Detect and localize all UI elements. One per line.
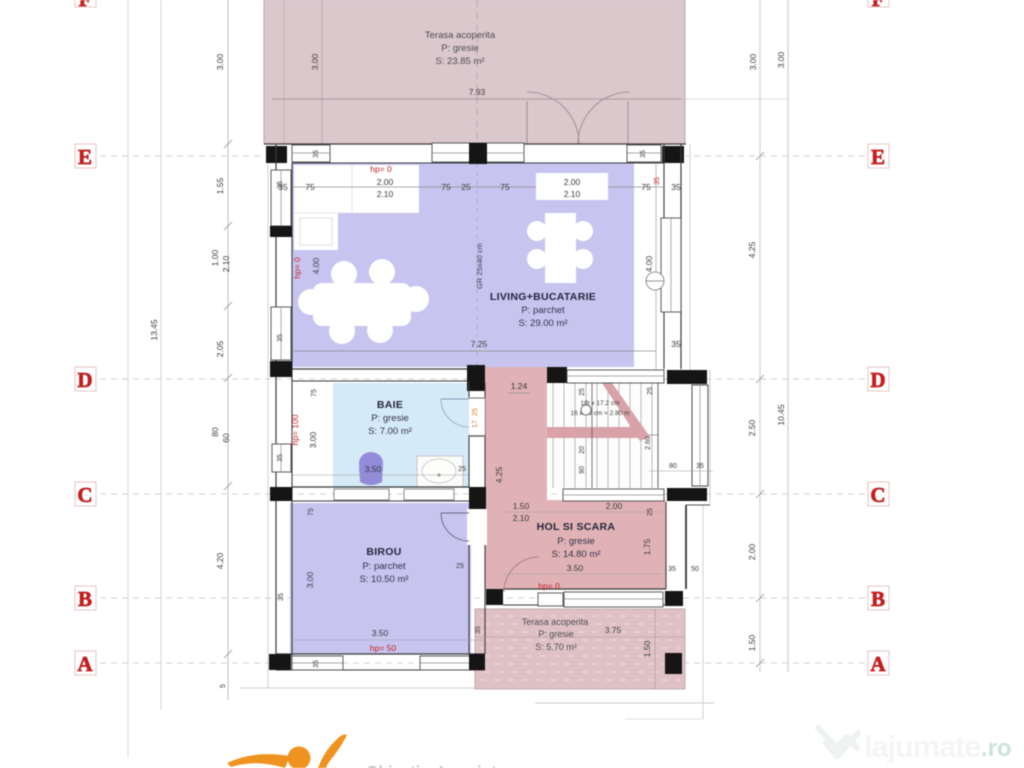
svg-text:25: 25 bbox=[472, 408, 479, 416]
svg-text:1.50: 1.50 bbox=[747, 634, 757, 651]
svg-text:90: 90 bbox=[579, 466, 586, 474]
svg-text:35: 35 bbox=[671, 182, 681, 192]
svg-text:1.50: 1.50 bbox=[513, 501, 530, 511]
svg-text:B: B bbox=[871, 587, 885, 611]
svg-text:E: E bbox=[78, 145, 92, 169]
svg-text:Terasa acoperita: Terasa acoperita bbox=[425, 30, 496, 41]
svg-text:F: F bbox=[872, 0, 885, 11]
svg-text:hp= 100: hp= 100 bbox=[290, 414, 300, 445]
svg-text:1.55: 1.55 bbox=[215, 177, 225, 194]
svg-text:75: 75 bbox=[500, 182, 510, 192]
svg-text:20: 20 bbox=[579, 446, 586, 454]
svg-text:GR 25x40 cm: GR 25x40 cm bbox=[475, 243, 484, 289]
svg-text:25: 25 bbox=[456, 563, 464, 570]
svg-text:75: 75 bbox=[441, 182, 451, 192]
svg-text:1.50: 1.50 bbox=[642, 640, 652, 657]
svg-text:3.50: 3.50 bbox=[372, 628, 389, 638]
svg-text:35: 35 bbox=[640, 150, 647, 158]
svg-text:80: 80 bbox=[210, 427, 220, 437]
svg-text:4.00: 4.00 bbox=[311, 257, 321, 274]
svg-text:25: 25 bbox=[461, 182, 471, 192]
svg-text:17: 17 bbox=[472, 420, 479, 428]
svg-text:A: A bbox=[77, 652, 93, 676]
svg-text:35: 35 bbox=[668, 566, 676, 573]
svg-text:35: 35 bbox=[654, 177, 661, 185]
svg-text:BIROU: BIROU bbox=[366, 546, 401, 558]
svg-text:4.25: 4.25 bbox=[747, 241, 757, 258]
svg-text:35: 35 bbox=[696, 463, 704, 470]
svg-text:1.75: 1.75 bbox=[642, 538, 652, 555]
svg-text:3.00: 3.00 bbox=[308, 431, 318, 448]
svg-text:35: 35 bbox=[313, 150, 320, 158]
svg-text:S: 10.50 m²: S: 10.50 m² bbox=[359, 574, 408, 585]
svg-text:13.45: 13.45 bbox=[149, 319, 159, 341]
svg-text:S: 29.00 m²: S: 29.00 m² bbox=[518, 318, 567, 329]
svg-text:25: 25 bbox=[647, 508, 654, 516]
svg-text:3.00: 3.00 bbox=[310, 53, 320, 70]
svg-text:B: B bbox=[78, 587, 92, 611]
svg-text:25: 25 bbox=[647, 387, 654, 395]
svg-text:7.25: 7.25 bbox=[471, 339, 488, 349]
svg-text:3.50: 3.50 bbox=[365, 464, 382, 474]
svg-text:2.10: 2.10 bbox=[377, 189, 394, 199]
svg-text:LIVING+BUCATARIE: LIVING+BUCATARIE bbox=[490, 291, 596, 303]
svg-text:F: F bbox=[79, 0, 92, 11]
svg-text:7.93: 7.93 bbox=[469, 87, 486, 97]
svg-text:C: C bbox=[77, 483, 92, 507]
svg-text:2.00: 2.00 bbox=[377, 177, 394, 187]
svg-text:P: gresie: P: gresie bbox=[371, 413, 409, 424]
svg-text:E: E bbox=[871, 145, 885, 169]
svg-text:2.00: 2.00 bbox=[747, 543, 757, 560]
svg-text:BAIE: BAIE bbox=[377, 399, 403, 411]
svg-text:3.75: 3.75 bbox=[605, 625, 622, 635]
svg-text:hp= 0: hp= 0 bbox=[370, 164, 392, 174]
svg-text:16 x 18 cm = 2.80 m: 16 x 18 cm = 2.80 m bbox=[570, 410, 629, 417]
svg-text:P: gresie: P: gresie bbox=[538, 629, 574, 639]
svg-text:S: 14.80 m²: S: 14.80 m² bbox=[551, 549, 600, 560]
svg-text:S: 5.70 m²: S: 5.70 m² bbox=[535, 642, 577, 652]
svg-text:3.00: 3.00 bbox=[305, 571, 315, 588]
svg-text:4.20: 4.20 bbox=[215, 552, 225, 569]
svg-text:3.00: 3.00 bbox=[776, 51, 786, 68]
svg-text:35: 35 bbox=[313, 660, 320, 668]
svg-text:75: 75 bbox=[311, 389, 318, 397]
svg-text:D: D bbox=[77, 368, 92, 392]
svg-text:hp= 0: hp= 0 bbox=[538, 581, 560, 591]
svg-text:80: 80 bbox=[669, 463, 677, 470]
svg-text:60: 60 bbox=[221, 433, 231, 443]
svg-text:.ro: .ro bbox=[981, 735, 1012, 762]
svg-text:C: C bbox=[870, 483, 885, 507]
svg-text:35: 35 bbox=[277, 334, 284, 342]
svg-text:S: 23.85 m²: S: 23.85 m² bbox=[435, 56, 484, 67]
svg-text:P: parchet: P: parchet bbox=[521, 305, 565, 316]
svg-text:Terasa acoperita: Terasa acoperita bbox=[522, 617, 589, 627]
svg-text:2.50: 2.50 bbox=[747, 419, 757, 436]
svg-text:75: 75 bbox=[641, 182, 651, 192]
svg-text:1.24: 1.24 bbox=[511, 381, 528, 391]
svg-text:P: gresie: P: gresie bbox=[557, 536, 595, 547]
svg-text:2.00: 2.00 bbox=[606, 501, 623, 511]
svg-text:4.25: 4.25 bbox=[494, 466, 504, 483]
svg-text:25: 25 bbox=[579, 388, 586, 396]
svg-text:35: 35 bbox=[278, 182, 288, 192]
svg-text:35: 35 bbox=[278, 593, 285, 601]
svg-text:P: parchet: P: parchet bbox=[362, 561, 406, 572]
svg-text:hp= 0: hp= 0 bbox=[292, 257, 302, 279]
svg-text:2.10: 2.10 bbox=[564, 189, 581, 199]
svg-text:Obiectiv: Locuinta: Obiectiv: Locuinta bbox=[366, 764, 506, 768]
svg-text:S: 7.00 m²: S: 7.00 m² bbox=[368, 426, 412, 437]
svg-text:3.00: 3.00 bbox=[215, 53, 225, 70]
svg-text:1.00: 1.00 bbox=[210, 249, 220, 266]
svg-text:25: 25 bbox=[458, 466, 466, 473]
svg-text:3.50: 3.50 bbox=[567, 563, 584, 573]
svg-text:A: A bbox=[870, 652, 886, 676]
svg-text:35: 35 bbox=[475, 626, 482, 634]
svg-text:2.00: 2.00 bbox=[564, 177, 581, 187]
svg-text:10.45: 10.45 bbox=[776, 404, 786, 426]
svg-text:2.10: 2.10 bbox=[513, 513, 530, 523]
svg-text:hp= 50: hp= 50 bbox=[370, 643, 397, 653]
svg-text:P: gresie: P: gresie bbox=[441, 43, 479, 54]
svg-text:35: 35 bbox=[671, 339, 681, 349]
svg-text:D: D bbox=[870, 368, 885, 392]
svg-text:2.05: 2.05 bbox=[215, 340, 225, 357]
svg-text:HOL SI SCARA: HOL SI SCARA bbox=[537, 521, 616, 533]
svg-text:2.10: 2.10 bbox=[221, 255, 231, 272]
svg-text:75: 75 bbox=[305, 182, 315, 192]
svg-text:lajumate: lajumate bbox=[864, 729, 981, 764]
svg-text:75: 75 bbox=[308, 508, 315, 516]
svg-text:3.00: 3.00 bbox=[748, 53, 758, 70]
svg-text:4.00: 4.00 bbox=[644, 255, 654, 272]
svg-text:35: 35 bbox=[277, 454, 284, 462]
svg-text:2.60: 2.60 bbox=[645, 436, 652, 450]
svg-text:5: 5 bbox=[220, 684, 227, 688]
svg-text:50: 50 bbox=[691, 566, 699, 573]
